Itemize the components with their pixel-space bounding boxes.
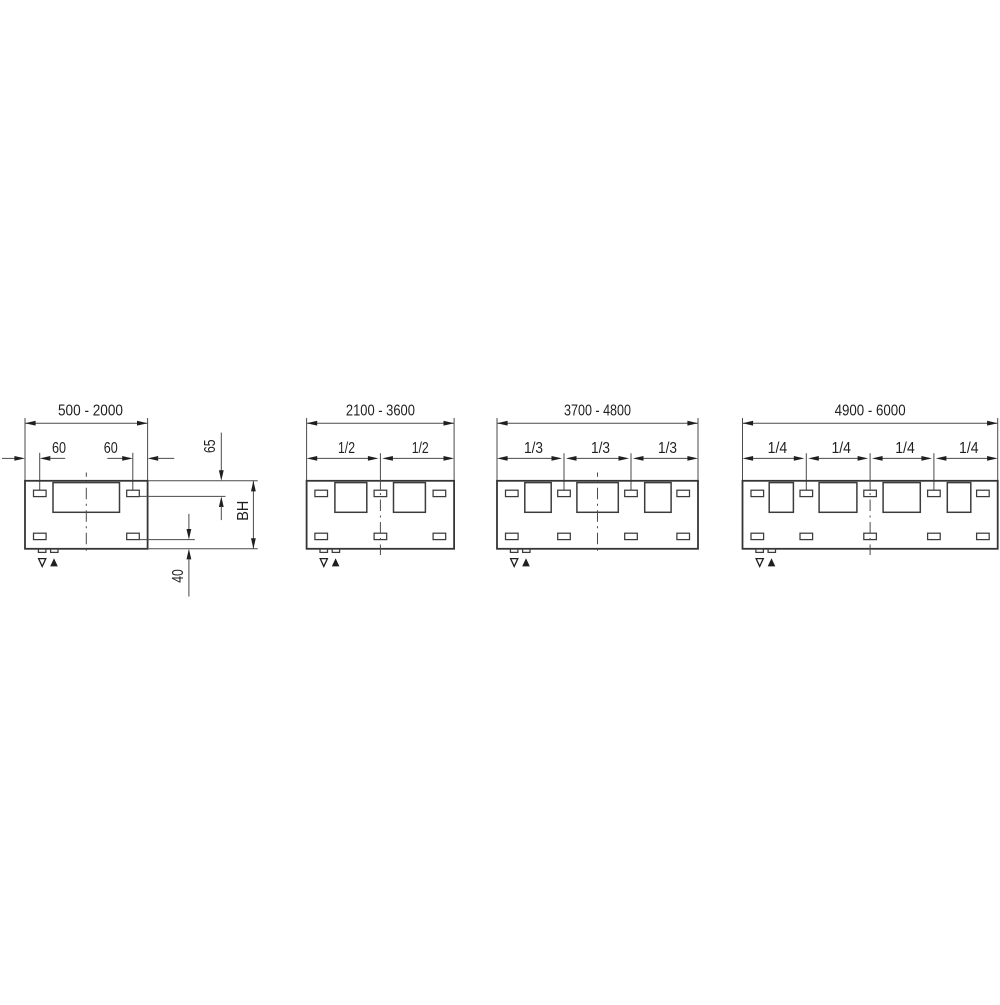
svg-text:2100 - 3600: 2100 - 3600 <box>346 402 415 419</box>
svg-text:1/2: 1/2 <box>412 440 429 457</box>
svg-text:60: 60 <box>52 440 66 457</box>
svg-text:1/4: 1/4 <box>895 440 915 457</box>
svg-text:1/4: 1/4 <box>768 440 788 457</box>
svg-text:3700 - 4800: 3700 - 4800 <box>564 402 631 419</box>
svg-text:500 - 2000: 500 - 2000 <box>58 402 123 419</box>
svg-text:65: 65 <box>202 440 219 454</box>
svg-text:4900 - 6000: 4900 - 6000 <box>835 402 906 419</box>
svg-text:1/4: 1/4 <box>831 440 851 457</box>
svg-text:1/3: 1/3 <box>591 440 610 457</box>
svg-text:60: 60 <box>104 440 118 457</box>
svg-text:1/3: 1/3 <box>658 440 677 457</box>
svg-text:1/4: 1/4 <box>959 440 979 457</box>
svg-text:BH: BH <box>235 501 252 521</box>
svg-text:40: 40 <box>170 569 187 583</box>
svg-text:1/2: 1/2 <box>338 440 355 457</box>
svg-text:1/3: 1/3 <box>524 440 543 457</box>
